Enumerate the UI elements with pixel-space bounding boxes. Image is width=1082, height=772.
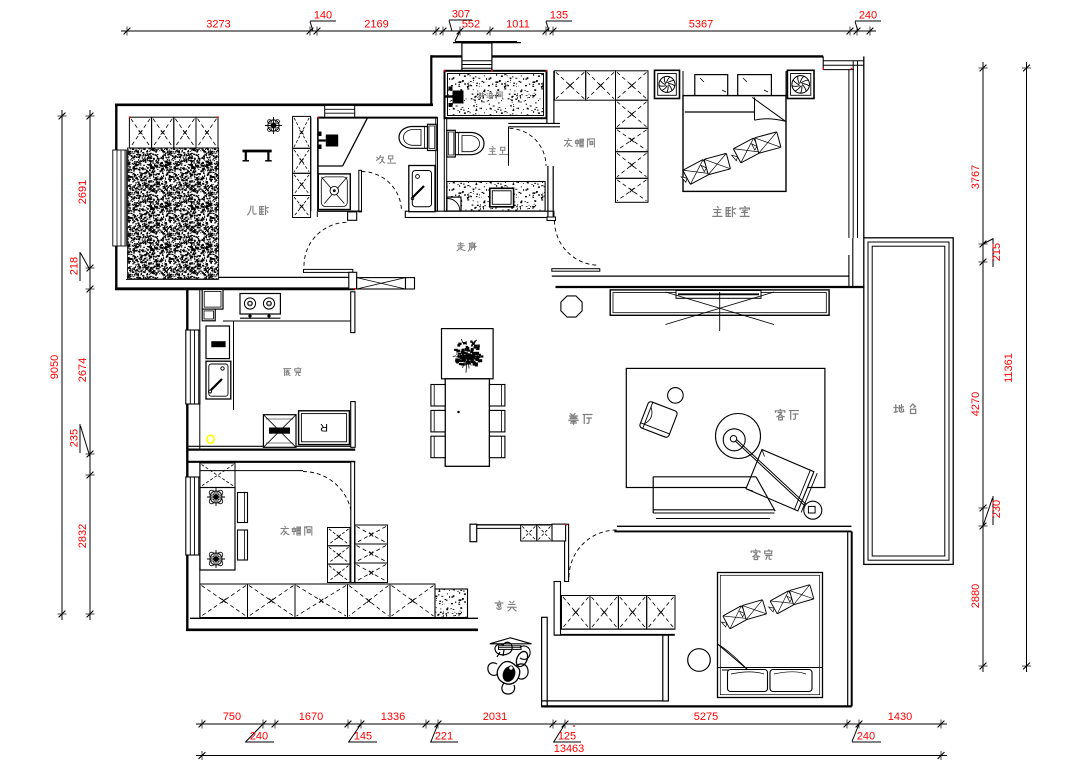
svg-text:1670: 1670 [299,711,323,723]
svg-text:4270: 4270 [970,392,982,416]
svg-text:5275: 5275 [694,711,718,723]
svg-text:5367: 5367 [689,19,713,31]
svg-text:135: 135 [550,10,568,22]
svg-text:230: 230 [991,500,1003,518]
svg-text:3767: 3767 [970,165,982,189]
svg-text:2031: 2031 [483,711,507,723]
svg-text:240: 240 [250,731,268,743]
svg-text:R: R [320,421,328,433]
svg-text:140: 140 [314,10,332,22]
svg-text:240: 240 [859,10,877,22]
svg-text:2169: 2169 [364,19,388,31]
svg-text:221: 221 [435,731,453,743]
svg-text:125: 125 [558,731,576,743]
svg-text:9050: 9050 [49,355,61,379]
svg-text:1011: 1011 [506,19,530,31]
svg-text:1430: 1430 [888,711,912,723]
svg-text:145: 145 [354,731,372,743]
svg-text:2691: 2691 [77,180,89,204]
svg-text:307: 307 [452,9,470,21]
svg-text:2832: 2832 [77,524,89,548]
svg-text:11361: 11361 [1003,353,1015,383]
svg-text:240: 240 [857,731,875,743]
svg-text:1336: 1336 [381,711,405,723]
svg-text:750: 750 [223,711,241,723]
svg-text:2880: 2880 [970,584,982,608]
svg-text:218: 218 [69,257,81,275]
svg-text:2674: 2674 [77,358,89,382]
svg-text:13463: 13463 [554,743,585,755]
svg-text:215: 215 [991,243,1003,261]
svg-text:235: 235 [69,429,81,447]
svg-text:3273: 3273 [206,19,230,31]
